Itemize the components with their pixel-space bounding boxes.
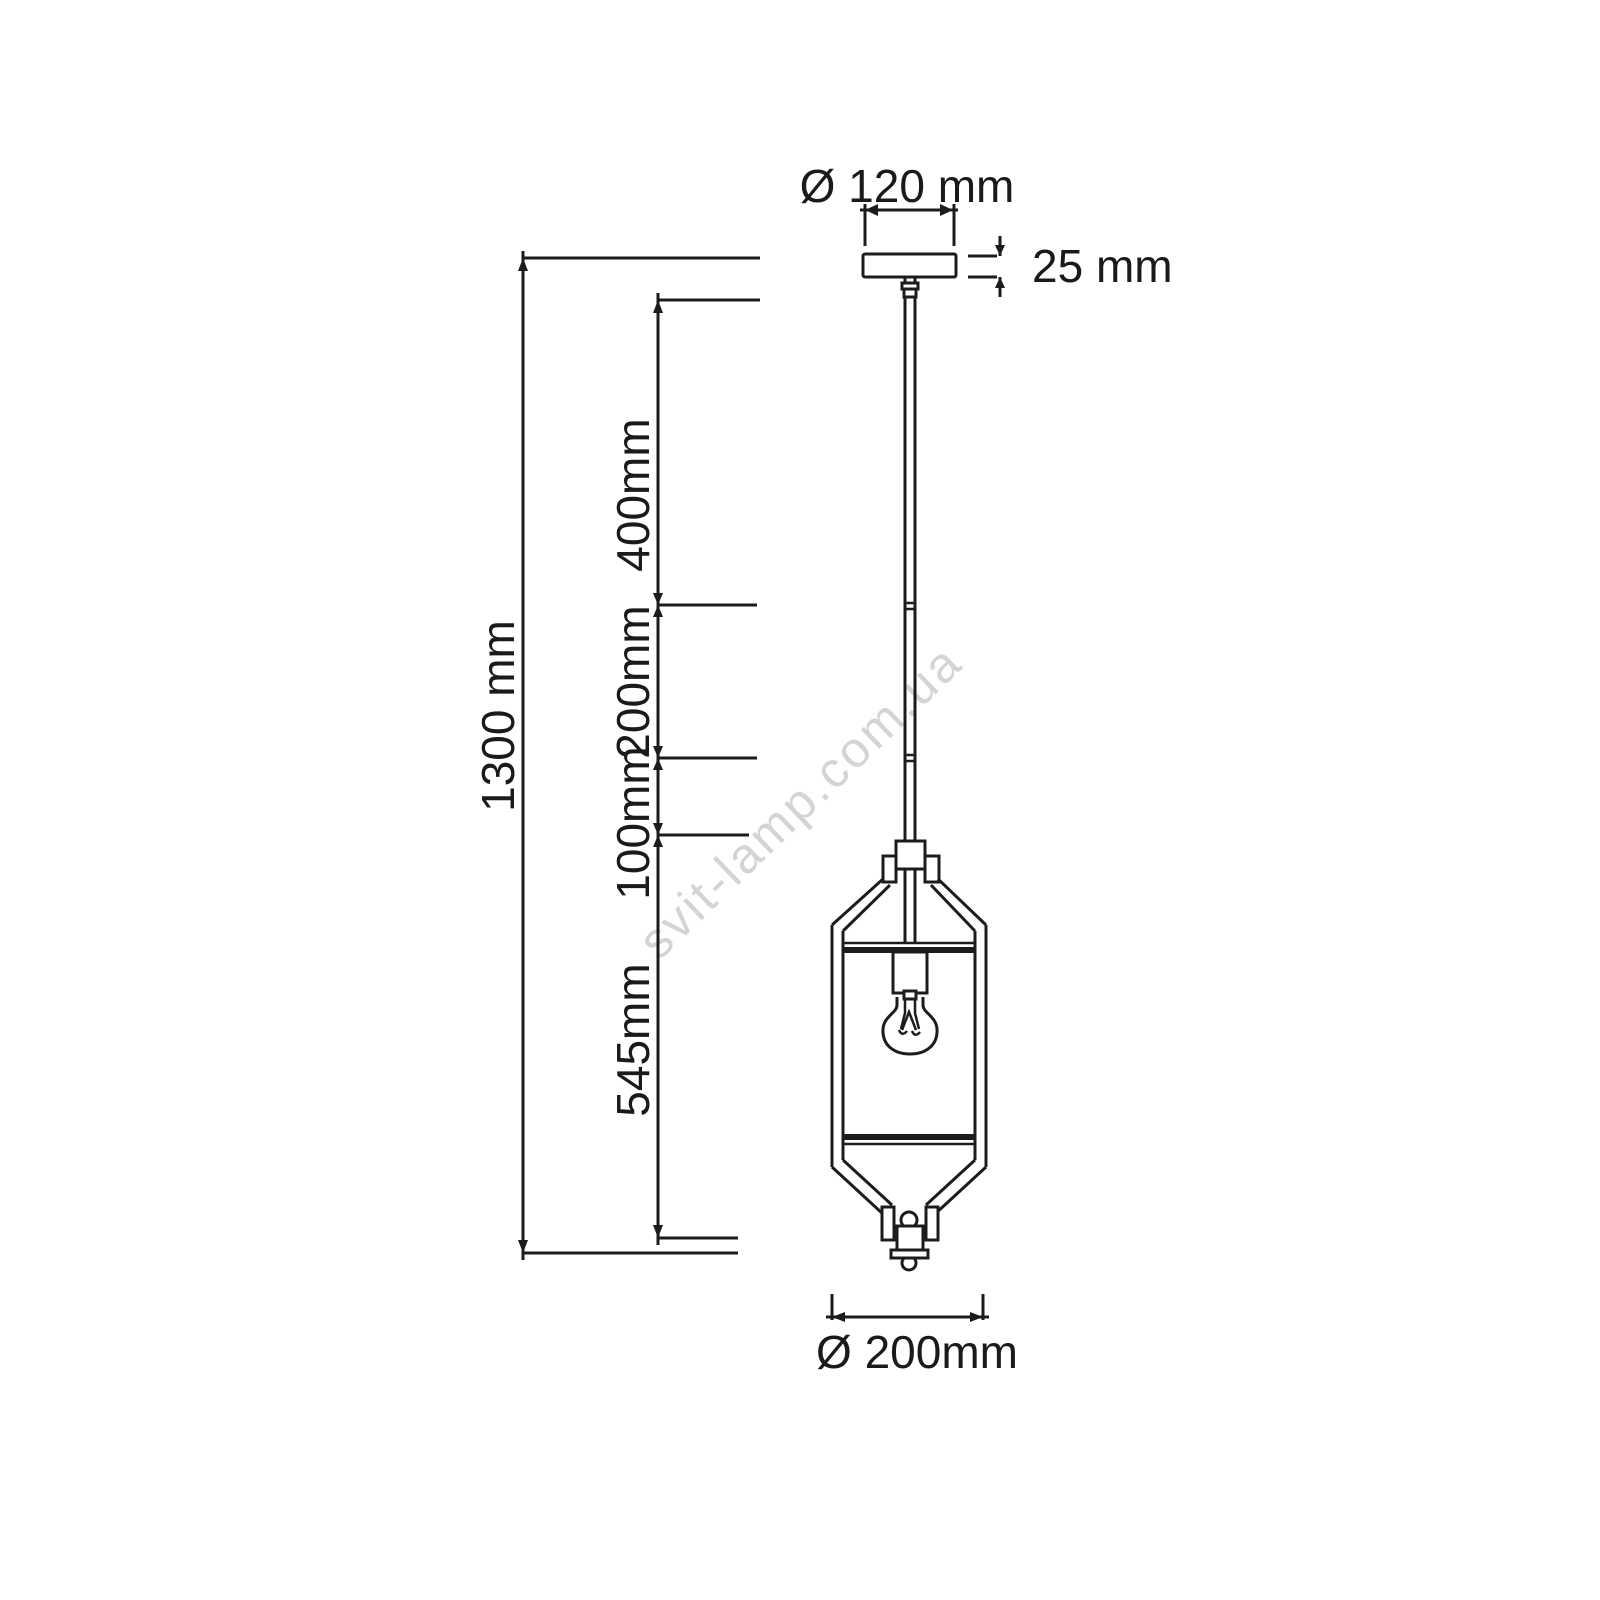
arrow-right (970, 1312, 983, 1322)
arrow-up (995, 277, 1005, 288)
socket-and-bulb (883, 952, 937, 1054)
finial-plate (891, 1250, 928, 1258)
arrow-300-up (653, 300, 663, 313)
finial-right-tab (926, 1207, 938, 1240)
finial-left-tab (882, 1207, 894, 1240)
arrow-bottom (518, 1240, 528, 1253)
arrow-605-down (653, 593, 663, 605)
filament-lead-right (915, 999, 919, 1029)
bulb-filament (899, 999, 920, 1035)
arrow-1238-down (653, 1225, 663, 1238)
dim-segment-chain: 400mm 200mm 100mm 545mm (607, 293, 760, 1245)
lantern-shoulders (832, 879, 986, 931)
hanger-left-tab (883, 856, 896, 882)
dim-lantern-diameter: Ø 200mm (816, 1294, 1018, 1378)
dim-total-height-label: 1300 mm (472, 620, 524, 812)
drawing-canvas: svit-lamp.com.ua (0, 0, 1600, 1600)
bottom-finial (882, 1207, 938, 1270)
lantern-top-hanger (883, 841, 939, 944)
dim-canopy-thickness: 25 mm (968, 236, 1173, 297)
filament-curl-right (912, 1031, 920, 1035)
arrow-left (832, 1312, 845, 1322)
glass-top-band (843, 943, 975, 950)
canopy-collar-lower (904, 289, 916, 297)
dim-canopy-thickness-label: 25 mm (1032, 240, 1173, 292)
watermark-text: svit-lamp.com.ua (628, 633, 973, 969)
glass-bottom-band (843, 1137, 975, 1144)
dim-canopy-diameter: Ø 120 mm (800, 160, 1015, 246)
lamp-socket (893, 952, 927, 993)
dim-segment-100-label: 100mm (607, 746, 659, 899)
socket-nipple (904, 991, 916, 999)
bulb-glass-outline (883, 997, 937, 1054)
arrow-top (518, 258, 528, 271)
finial-block (897, 1226, 923, 1250)
dim-segment-200-label: 200mm (607, 605, 659, 758)
hanger-right-tab (925, 856, 939, 882)
lantern-bottom-slopes (832, 1160, 986, 1214)
filament-curl-left (899, 1030, 907, 1034)
ceiling-canopy (863, 254, 956, 297)
canopy-plate (863, 254, 956, 277)
pendant-lamp-dimension-drawing: svit-lamp.com.ua (0, 0, 1600, 1600)
dim-lantern-height-label: 545mm (607, 963, 659, 1116)
dim-canopy-diameter-label: Ø 120 mm (800, 160, 1015, 212)
dim-lantern-diameter-label: Ø 200mm (816, 1326, 1018, 1378)
hanger-center-block (896, 841, 925, 869)
arrow-down (995, 245, 1005, 256)
dim-segment-400-label: 400mm (607, 418, 659, 571)
